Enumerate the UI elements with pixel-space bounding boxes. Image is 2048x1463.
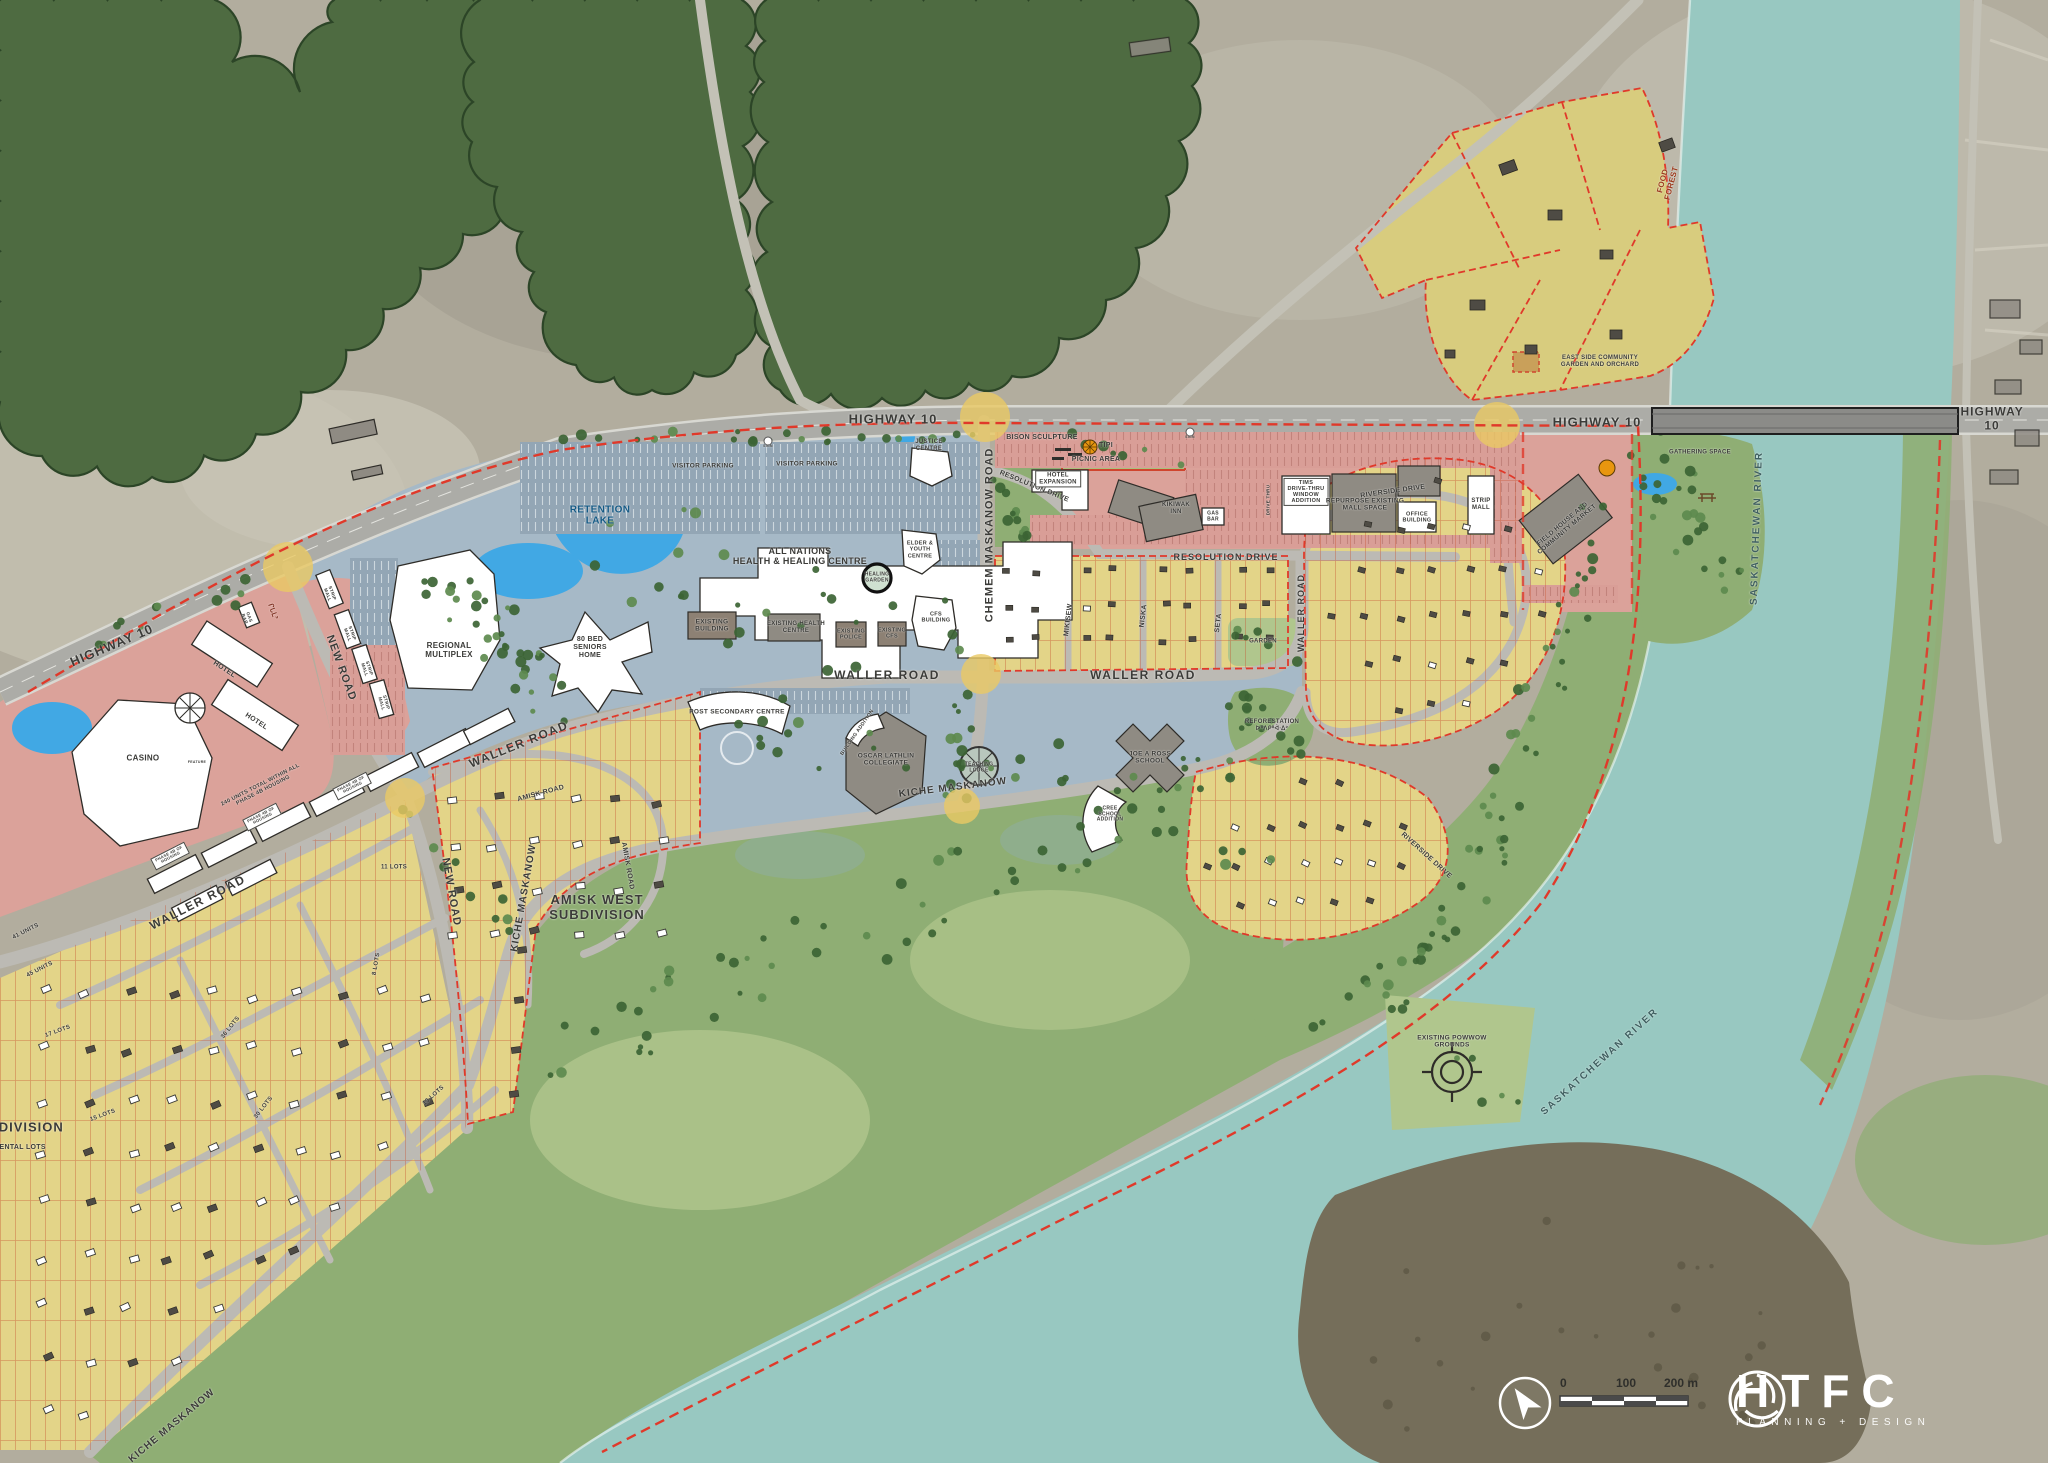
map-label-resolution-drive: RESOLUTION DRIVE [1173, 552, 1278, 562]
map-label-amisk-west-subdivision: AMISK WEST SUBDIVISION [549, 893, 645, 923]
map-label-repurpose-existing-mall-spac: REPURPOSE EXISTING MALL SPACE [1326, 498, 1404, 513]
map-label-sign: SIGN [1185, 435, 1195, 439]
map-label-reforestation-: REFORESTATION ᐅᐦᐱᑭᐦᐋᐧᐃᐣ [1245, 719, 1299, 733]
map-label-sign: SIGN [763, 444, 773, 448]
map-label-regional-multiplex: REGIONAL MULTIPLEX [425, 641, 472, 659]
map-label-waller-road: WALLER ROAD [1090, 669, 1196, 683]
map-label-garden: GARDEN [1249, 639, 1277, 646]
map-label-new-road: NEW ROAD [323, 633, 358, 702]
map-label-13-lots: 13 LOTS [422, 1085, 446, 1108]
map-label-post-secondary-centre: POST SECONDARY CENTRE [689, 708, 785, 715]
map-label-elder-youth-centre: ELDER & YOUTH CENTRE [907, 541, 933, 560]
map-label-highway-10: HIGHWAY 10 [1553, 416, 1642, 431]
map-label-existing-cfs: EXISTING CFS [878, 628, 906, 641]
map-label-gas-bar: GAS BAR [240, 611, 253, 625]
scale-tick: 0 [1560, 1376, 1567, 1390]
map-label-phase-4b-of-housing: PHASE 4B OF HOUSING [332, 772, 372, 801]
map-label-waller-road: WALLER ROAD [1296, 574, 1306, 652]
map-label-feature: FEATURE [188, 760, 206, 764]
map-label--: ᒋᒐᒪᐣ [265, 603, 278, 621]
map-label-80-bed-seniors-home: 80 BED SENIORS HOME [573, 636, 607, 660]
map-label-kikiwak-inn: KIKIWAK INN [1162, 502, 1190, 516]
map-label-hotel: HOTEL [243, 712, 269, 732]
map-label-visitor-parking: VISITOR PARKING [672, 462, 734, 469]
map-label-41-units: 41 UNITS [12, 922, 41, 941]
map-label-chemem-maskanow-road: CHEMEM MASKANOW ROAD [984, 448, 997, 623]
map-label-drive-thru: DRIVE THRU [1265, 485, 1270, 516]
map-label-36-lots: 36 LOTS [220, 1015, 242, 1040]
map-label-amisk-road: AMISK ROAD [619, 842, 635, 891]
map-label-saskatchewan-river: SASKATCHEWAN RIVER [1749, 451, 1766, 605]
map-label-mikisew: MIKISEW [1063, 603, 1075, 637]
map-label-strip-mall: STRIP MALL [377, 694, 391, 711]
scale-tick: 100 [1616, 1376, 1636, 1390]
map-label-strip-mall: STRIP MALL [360, 660, 374, 677]
map-label-existing-powwow-grounds: EXISTING POWWOW GROUNDS [1417, 1035, 1487, 1050]
map-label-cfs-building: CFS BUILDING [922, 612, 951, 625]
map-label-riverside-drive: RIVERSIDE DRIVE [1399, 831, 1453, 881]
map-label-30-lots: 30 LOTS [253, 1095, 275, 1120]
map-label-picnic-area: PICNIC AREA [1072, 456, 1121, 464]
north-arrow-icon [1496, 1374, 1554, 1432]
map-label-kiche-maskanow: KICHE MASKANOW [509, 843, 539, 952]
map-label-retention-lake: RETENTION LAKE [570, 505, 630, 528]
map-label-east-side-community-garden-a: EAST SIDE COMMUNITY GARDEN AND ORCHARD [1561, 355, 1639, 369]
map-label-existing-police: EXISTING POLICE [837, 629, 865, 642]
map-label-highway-10: HIGHWAY 10 [849, 413, 938, 428]
map-label-joe-a-ross-school: JOE A ROSS SCHOOL [1129, 751, 1171, 766]
map-label-field-house-and-community-ma: FIELD HOUSE AND COMMUNITY MARKET [1532, 497, 1598, 556]
map-label-building-addition: BUILDING ADDITION [840, 709, 876, 757]
scale-bar: 0 100 200 m [1558, 1376, 1708, 1418]
map-label-kiche-maskanow: KICHE MASKANOW [898, 776, 1008, 801]
map-label-amisk-road: AMISK ROAD [517, 784, 566, 804]
map-label-waller-road: WALLER ROAD [467, 719, 570, 771]
map-label-teaching-lodge: TEACHING LODGE [965, 762, 994, 773]
map-label-waller-road: WALLER ROAD [148, 873, 249, 933]
map-label-hotel: HOTEL [211, 660, 237, 680]
map-label-kiche-maskanow: KICHE MASKANOW [127, 1387, 218, 1463]
map-label-hotel-expansion: HOTEL EXPANSION [1035, 470, 1081, 487]
map-label-tims-drive-thru-window-addit: TIMS DRIVE-THRU WINDOW ADDITION [1284, 478, 1329, 506]
logo-subtitle: PLANNING + DESIGN [1736, 1417, 1930, 1428]
map-label-visitor-parking: VISITOR PARKING [776, 460, 838, 467]
map-label-highway-10: HIGHWAY 10 [1960, 405, 2023, 432]
map-label-17-lots: 17 LOTS [44, 1024, 71, 1039]
map-label-phase-4b-of-housing: PHASE 4B OF HOUSING [242, 803, 282, 832]
map-label-phase-4b-of-housing: PHASE 4B OF HOUSING [150, 842, 190, 871]
map-label-15-lots: 15 LOTS [89, 1108, 116, 1123]
map-label-oscar-lathlin-collegiate: OSCAR LATHLIN COLLEGIATE [858, 753, 915, 768]
map-label-subdivision: SUBDIVISION [0, 1121, 64, 1136]
map-label-bison-sculpture: BISON SCULPTURE [1006, 434, 1077, 442]
map-label-existing-health-centre: EXISTING HEALTH CENTRE [767, 621, 825, 635]
map-label-seta: SETA [1214, 613, 1224, 633]
map-label-tipi: TIPI [1099, 442, 1113, 450]
htfc-logo: HTFC PLANNING + DESIGN [1726, 1368, 1930, 1428]
map-label-all-nations-health-healing-c: ALL NATIONS HEALTH & HEALING CENTRE [733, 546, 867, 567]
scale-tick: 200 m [1664, 1376, 1698, 1390]
map-label-saskatchewan-river: SASKATCHEWAN RIVER [1539, 1006, 1661, 1118]
map-label-waller-road: WALLER ROAD [834, 669, 940, 683]
map-label-highway-10: HIGHWAY 10 [68, 622, 155, 670]
map-label-strip-mall: STRIP MALL [343, 625, 358, 642]
master-plan-map: HIGHWAY 10HIGHWAY 10HIGHWAY 10HIGHWAY 10… [0, 0, 2048, 1463]
map-label-240-units-total-within-all-p: 240 UNITS TOTAL WITHIN ALL PHASE 4B HOUS… [220, 763, 304, 814]
map-label-cree-school-addition: CREE SCHOOL ADDITION [1097, 806, 1124, 823]
map-label-rental-lots: RENTAL LOTS [0, 1144, 46, 1152]
map-label-justice-centre: JUSTICE CENTRE [915, 439, 942, 453]
map-label-new-road: NEW ROAD [439, 857, 463, 927]
map-label-gas-bar: GAS BAR [1207, 511, 1219, 522]
map-label-11-lots: 11 LOTS [381, 865, 407, 872]
map-labels: HIGHWAY 10HIGHWAY 10HIGHWAY 10HIGHWAY 10… [0, 0, 2048, 1463]
map-label-niska: NISKA [1139, 604, 1150, 628]
map-label-casino: CASINO [127, 753, 160, 762]
map-label-strip-mall: STRIP MALL [1471, 498, 1490, 512]
map-label-gathering-space: GATHERING SPACE [1669, 450, 1731, 457]
map-label-8-lots: 8 LOTS [372, 952, 383, 976]
map-label-45-units: 45 UNITS [26, 960, 55, 979]
map-legend: 0 100 200 m HTFC PLANN [1496, 1368, 1966, 1454]
map-label-healing-garden: HEALING GARDEN [865, 572, 890, 583]
map-label-food-forest: FOOD FOREST [1654, 163, 1680, 201]
map-label-office-building: OFFICE BUILDING [1403, 512, 1432, 525]
map-label-existing-building: EXISTING BUILDING [695, 619, 729, 634]
map-label-strip-mall: STRIP MALL [323, 585, 338, 602]
